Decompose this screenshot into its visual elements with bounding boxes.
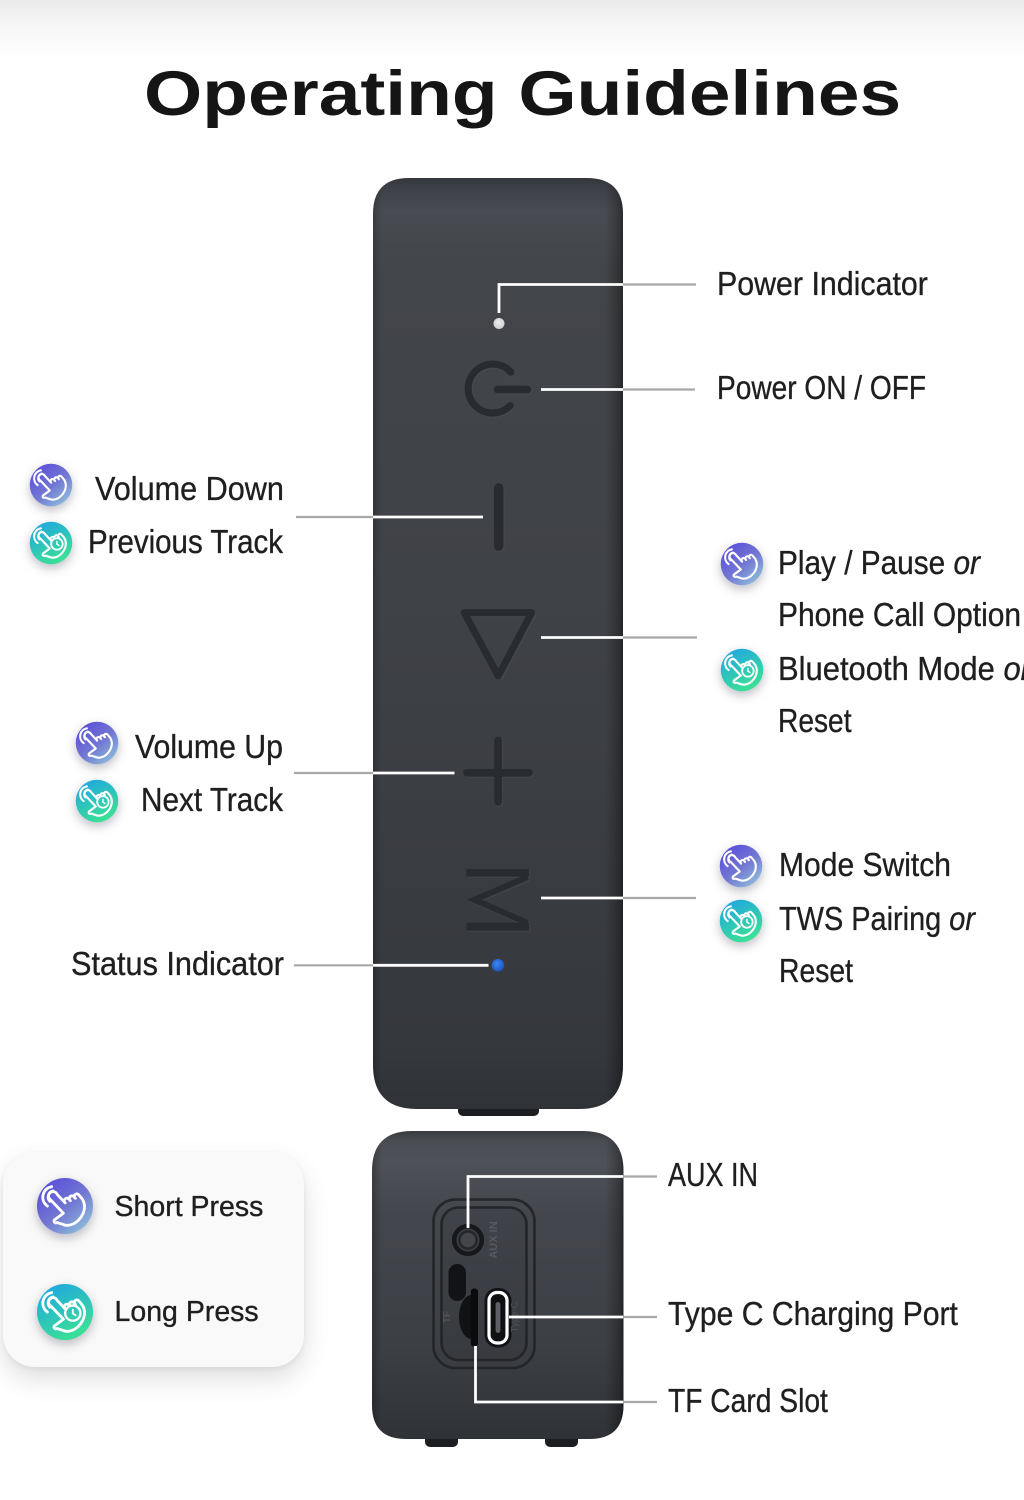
svg-text:AUX IN: AUX IN <box>488 1221 500 1258</box>
svg-text:TF: TF <box>442 1311 453 1323</box>
